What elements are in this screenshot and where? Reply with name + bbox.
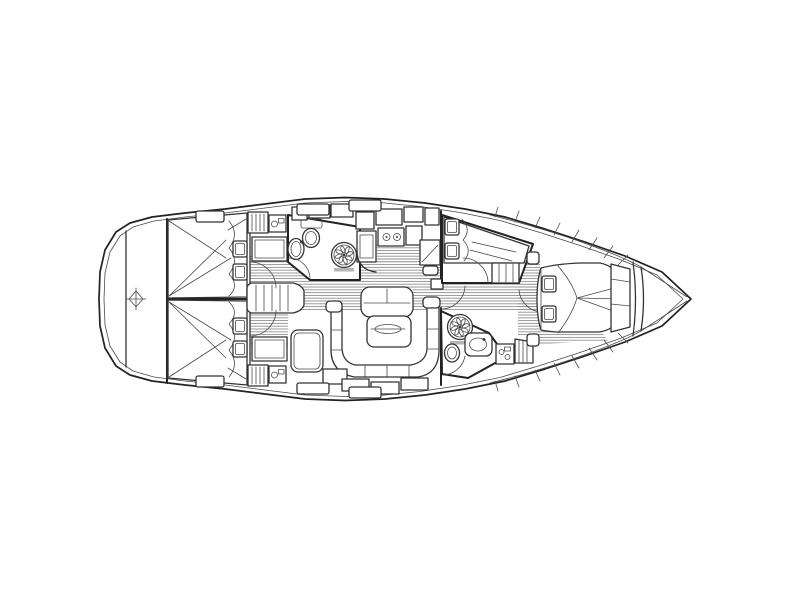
pillow [233, 318, 247, 334]
deck-hatch [297, 383, 329, 394]
pillow [445, 243, 459, 259]
pillow [542, 276, 556, 292]
vanity-locker-icon [496, 344, 514, 364]
pillow [445, 219, 459, 235]
pillow [233, 341, 247, 357]
overhead-locker [356, 212, 374, 229]
nightstand [527, 252, 539, 264]
boat-floor-plan-page [0, 0, 800, 600]
gear-box-icon [269, 215, 286, 232]
saloon-table [367, 316, 411, 347]
gear-box-icon [269, 366, 286, 383]
nightstand [527, 334, 539, 346]
stove [378, 228, 404, 246]
wardrobe [252, 237, 287, 261]
tap-icon [483, 338, 486, 341]
deck-hatch [297, 204, 329, 215]
pillow [542, 306, 556, 322]
aft-head [288, 215, 360, 280]
pillow [233, 264, 247, 280]
settee-armrest [326, 301, 342, 312]
wardrobe [252, 337, 287, 361]
shower-label-bar [334, 268, 354, 272]
deck-hatch [196, 211, 224, 222]
companionway-ladder [247, 283, 304, 313]
dresser [492, 263, 519, 283]
nav-seat [423, 266, 438, 275]
aft-cabin-top-berth [168, 213, 247, 298]
louvered-locker [248, 365, 268, 386]
shower-rose-icon [332, 243, 357, 268]
louvered-locker [248, 212, 268, 233]
tap-icon [300, 241, 303, 244]
settee-armrest [423, 297, 440, 308]
deck-hatch [349, 387, 381, 398]
deck-hatch [349, 200, 381, 211]
deck-hatch [196, 376, 224, 387]
aft-cabin-bottom-berth [168, 300, 247, 385]
pillow [233, 241, 247, 257]
overhead-locker [404, 207, 423, 222]
chart-table [420, 240, 440, 275]
saloon-bench [361, 287, 413, 317]
yacht-floor-plan [0, 0, 800, 600]
washbasin-counter [465, 333, 492, 356]
overhead-locker [425, 208, 439, 225]
